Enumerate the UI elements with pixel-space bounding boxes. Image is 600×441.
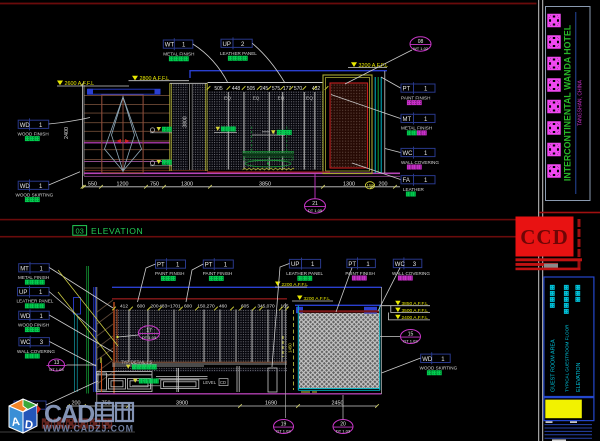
svg-text:UP: UP bbox=[291, 262, 299, 268]
svg-text:3900: 3900 bbox=[176, 400, 188, 406]
svg-text:METAL FINISH: METAL FINISH bbox=[163, 52, 194, 57]
svg-text:DT 1.03: DT 1.03 bbox=[276, 429, 291, 434]
svg-text:LEATHER PANEL: LEATHER PANEL bbox=[17, 299, 54, 304]
svg-text:WALL COVERING: WALL COVERING bbox=[17, 349, 55, 354]
svg-text:EQ: EQ bbox=[253, 95, 260, 100]
svg-text:WT 1.02: WT 1.02 bbox=[413, 46, 429, 51]
svg-text:1450: 1450 bbox=[288, 343, 293, 353]
svg-text:MT: MT bbox=[20, 266, 29, 272]
svg-text:ELEVATION: ELEVATION bbox=[576, 362, 582, 392]
svg-text:WOOD FINISH: WOOD FINISH bbox=[18, 322, 49, 327]
svg-text:A: A bbox=[11, 416, 21, 429]
svg-text:165: 165 bbox=[280, 304, 288, 310]
svg-text:DT 1.05: DT 1.05 bbox=[308, 208, 323, 213]
svg-text:3800: 3800 bbox=[183, 116, 189, 127]
svg-text:LEVEL: LEVEL bbox=[203, 380, 217, 385]
svg-text:FA: FA bbox=[403, 178, 410, 184]
svg-text:METAL FINISH: METAL FINISH bbox=[18, 275, 49, 280]
svg-text:LEATHER: LEATHER bbox=[403, 187, 425, 192]
svg-text:460: 460 bbox=[219, 304, 227, 310]
svg-text:DT 1.03: DT 1.03 bbox=[49, 367, 64, 372]
svg-text:WWW.CADZJ.COM: WWW.CADZJ.COM bbox=[43, 424, 134, 434]
svg-text:605: 605 bbox=[241, 304, 249, 310]
svg-text:INTERCONTINENTAL WANDA HOTEL: INTERCONTINENTAL WANDA HOTEL bbox=[563, 24, 573, 181]
svg-text:DT 1.03: DT 1.03 bbox=[403, 339, 418, 344]
svg-text:21: 21 bbox=[312, 201, 318, 207]
svg-text:UP: UP bbox=[19, 290, 27, 296]
svg-text:WOOD FINISH: WOOD FINISH bbox=[18, 131, 49, 136]
svg-text:TYPICAL GUESTROOM FLOOR: TYPICAL GUESTROOM FLOOR bbox=[565, 324, 570, 392]
svg-text:CD: CD bbox=[220, 380, 226, 385]
svg-text:WC: WC bbox=[403, 151, 414, 157]
svg-text:3850: 3850 bbox=[259, 182, 271, 188]
svg-text:EQ: EQ bbox=[306, 95, 313, 100]
svg-text:550: 550 bbox=[88, 182, 97, 188]
svg-text:WT: WT bbox=[165, 43, 175, 49]
svg-text:PT: PT bbox=[157, 263, 165, 269]
svg-text:345,070: 345,070 bbox=[257, 304, 275, 310]
svg-text:570: 570 bbox=[294, 86, 303, 92]
svg-text:245: 245 bbox=[260, 86, 269, 92]
svg-text:750: 750 bbox=[150, 182, 159, 188]
svg-text:150,270: 150,270 bbox=[197, 304, 215, 310]
svg-text:1300: 1300 bbox=[181, 182, 193, 188]
svg-text:LEATHER PANEL: LEATHER PANEL bbox=[286, 271, 323, 276]
svg-text:CCD: CCD bbox=[520, 225, 569, 249]
svg-text:D: D bbox=[24, 419, 34, 432]
svg-text:PAINT FINISH: PAINT FINISH bbox=[155, 271, 184, 276]
svg-text:DT 1.03: DT 1.03 bbox=[142, 335, 157, 340]
svg-text:EQ: EQ bbox=[278, 95, 285, 100]
svg-text:WD: WD bbox=[20, 184, 31, 190]
svg-text:08: 08 bbox=[418, 39, 424, 45]
svg-text:PT: PT bbox=[348, 262, 356, 268]
svg-text:DT 1.03: DT 1.03 bbox=[336, 429, 351, 434]
svg-text:1200: 1200 bbox=[117, 182, 129, 188]
svg-text:600: 600 bbox=[137, 304, 145, 310]
svg-text:WALL COVERING: WALL COVERING bbox=[401, 160, 439, 165]
svg-text:METAL FINISH: METAL FINISH bbox=[401, 126, 432, 131]
svg-text:WD: WD bbox=[422, 357, 433, 363]
svg-text:505: 505 bbox=[214, 86, 223, 92]
svg-text:1690: 1690 bbox=[265, 400, 277, 406]
svg-text:GUEST ROOM AREA: GUEST ROOM AREA bbox=[551, 339, 557, 392]
svg-text:2800 A.F.F.L: 2800 A.F.F.L bbox=[140, 76, 170, 82]
svg-text:MT: MT bbox=[403, 117, 412, 123]
svg-text:WD: WD bbox=[20, 314, 31, 320]
svg-text:2450: 2450 bbox=[332, 400, 344, 406]
svg-text:13: 13 bbox=[54, 360, 60, 366]
svg-text:WOOD SKIRTING: WOOD SKIRTING bbox=[420, 366, 458, 371]
svg-text:UP: UP bbox=[223, 42, 231, 48]
svg-text:20: 20 bbox=[340, 422, 346, 428]
svg-text:WOOD SKIRTING: WOOD SKIRTING bbox=[16, 192, 54, 197]
svg-text:PAINT FINISH: PAINT FINISH bbox=[203, 271, 232, 276]
svg-text:19: 19 bbox=[281, 422, 287, 428]
svg-text:600: 600 bbox=[184, 304, 192, 310]
svg-text:WD: WD bbox=[20, 123, 31, 129]
svg-text:15: 15 bbox=[408, 332, 414, 338]
svg-text:1300: 1300 bbox=[343, 182, 355, 188]
svg-text:412: 412 bbox=[120, 304, 128, 310]
svg-text:03: 03 bbox=[76, 227, 84, 236]
svg-text:PT: PT bbox=[403, 87, 411, 93]
svg-text:505: 505 bbox=[247, 86, 256, 92]
svg-text:575: 575 bbox=[272, 86, 281, 92]
svg-text:3200 A.F.F.L: 3200 A.F.F.L bbox=[359, 63, 389, 69]
svg-text:PT: PT bbox=[205, 263, 213, 269]
svg-text:PAINT FINISH: PAINT FINISH bbox=[401, 95, 430, 100]
svg-text:TANGSHAN, CHINA: TANGSHAN, CHINA bbox=[578, 79, 584, 125]
svg-text:WC: WC bbox=[395, 262, 406, 268]
svg-text:LEATHER PANEL: LEATHER PANEL bbox=[220, 51, 257, 56]
svg-text:TYP. DETAIL 1:5: TYP. DETAIL 1:5 bbox=[121, 360, 153, 365]
svg-text:WC: WC bbox=[20, 340, 31, 346]
svg-text:150: 150 bbox=[367, 183, 375, 188]
svg-text:483=1701: 483=1701 bbox=[159, 304, 181, 310]
svg-text:200: 200 bbox=[379, 182, 388, 188]
svg-text:448: 448 bbox=[232, 86, 241, 92]
svg-text:ELEVATION: ELEVATION bbox=[91, 226, 143, 236]
svg-text:200: 200 bbox=[150, 304, 158, 310]
svg-text:2400: 2400 bbox=[64, 127, 70, 139]
svg-text:EQ: EQ bbox=[224, 95, 231, 100]
svg-text:17: 17 bbox=[146, 328, 152, 334]
